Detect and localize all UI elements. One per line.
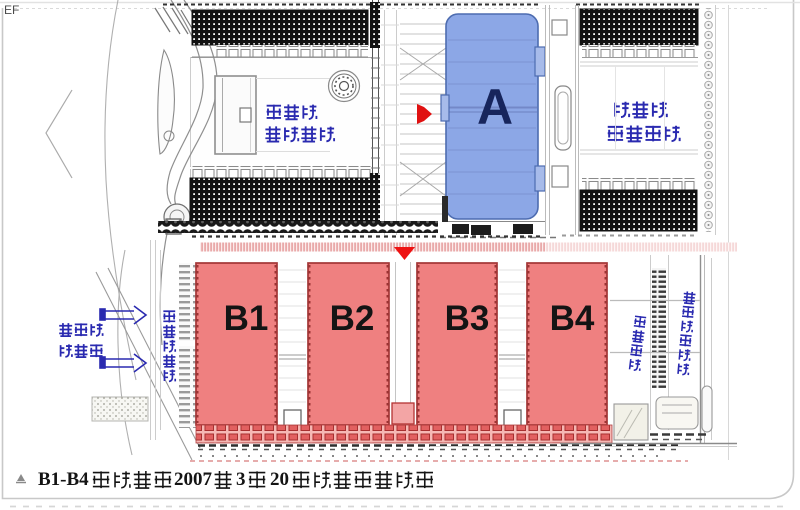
svg-text:A: A: [477, 79, 513, 135]
svg-text:B1-B4: B1-B4: [38, 469, 89, 490]
svg-text:20: 20: [270, 469, 289, 490]
svg-text:2007: 2007: [174, 469, 213, 490]
svg-text:3: 3: [236, 469, 246, 490]
svg-text:EF: EF: [4, 3, 19, 17]
svg-text:B1: B1: [224, 299, 269, 338]
svg-text:B3: B3: [445, 299, 490, 338]
svg-text:B2: B2: [330, 299, 375, 338]
svg-text:B4: B4: [550, 299, 595, 338]
